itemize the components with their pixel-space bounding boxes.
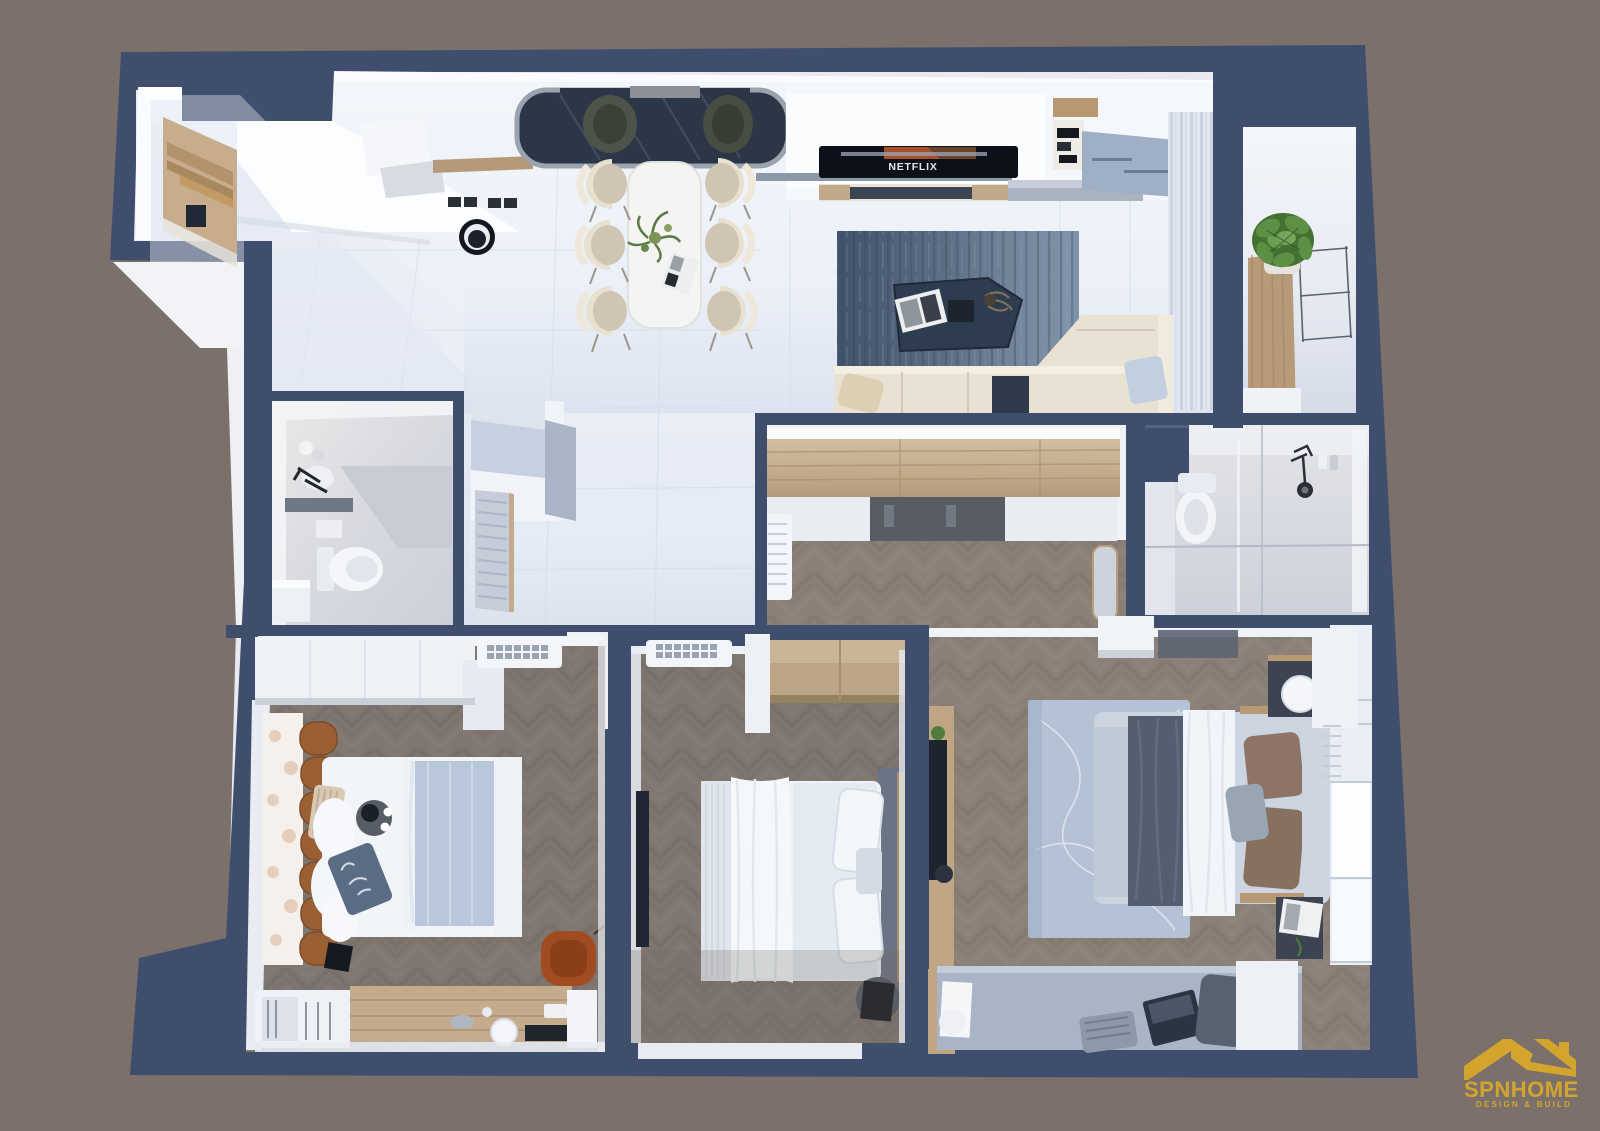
svg-text:DESIGN & BUILD: DESIGN & BUILD: [1476, 1100, 1572, 1109]
svg-text:NETFLIX: NETFLIX: [888, 161, 937, 173]
svg-text:SPNHOME: SPNHOME: [1464, 1077, 1579, 1102]
